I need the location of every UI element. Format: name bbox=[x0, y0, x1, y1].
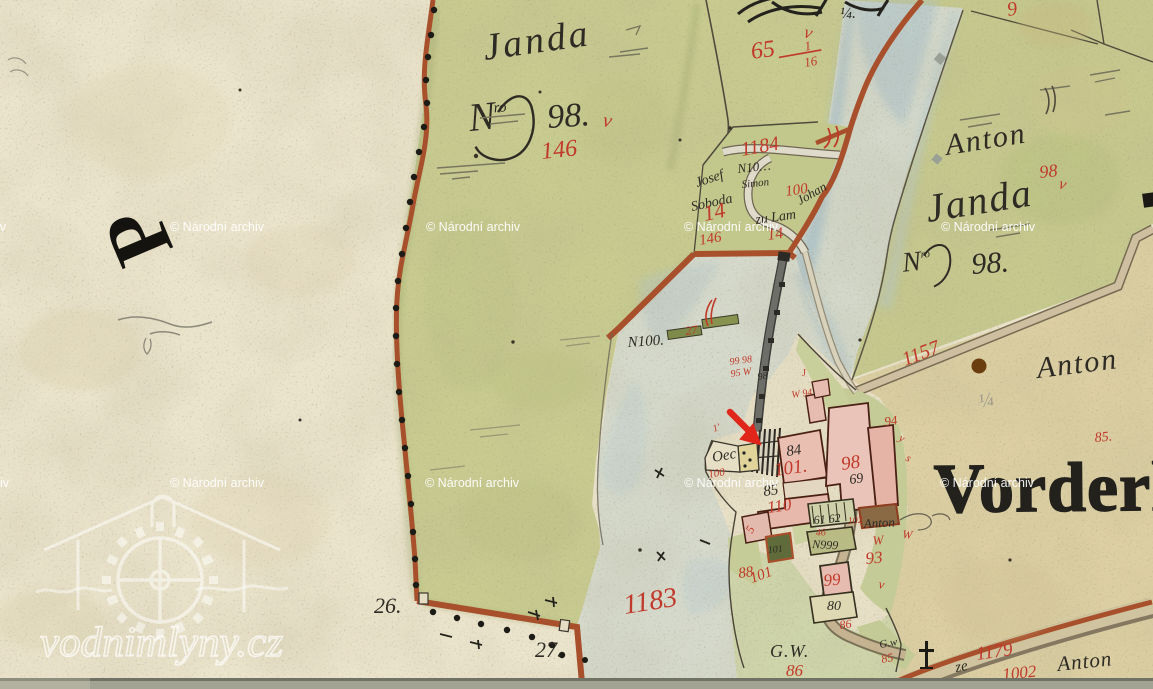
svg-text:ro: ro bbox=[493, 99, 508, 116]
svg-text:© Národní archiv: © Národní archiv bbox=[940, 476, 1035, 490]
svg-text:46: 46 bbox=[815, 527, 826, 539]
svg-text:ro: ro bbox=[920, 248, 931, 261]
svg-text:94: 94 bbox=[883, 412, 898, 429]
svg-text:80: 80 bbox=[827, 599, 841, 614]
svg-text:© Národní archiv: © Národní archiv bbox=[0, 476, 10, 490]
svg-text:Anton: Anton bbox=[862, 514, 895, 531]
svg-text:© Národní archiv: © Národní archiv bbox=[426, 220, 521, 234]
svg-text:99: 99 bbox=[823, 570, 842, 590]
svg-text:61 62: 61 62 bbox=[813, 511, 841, 527]
svg-text:N100.: N100. bbox=[626, 332, 664, 351]
svg-text:101: 101 bbox=[767, 544, 783, 556]
svg-text:98.: 98. bbox=[546, 96, 591, 136]
svg-text:© Národní archiv: © Národní archiv bbox=[941, 220, 1036, 234]
svg-text:© Národní archiv: © Národní archiv bbox=[684, 220, 779, 234]
svg-text:85.: 85. bbox=[1094, 430, 1113, 446]
svg-text:© Národní archiv: © Národní archiv bbox=[425, 476, 520, 490]
svg-text:98: 98 bbox=[757, 371, 768, 383]
svg-text:146: 146 bbox=[540, 135, 579, 165]
svg-text:¼.: ¼. bbox=[840, 5, 856, 22]
svg-text:© Národní archiv: © Národní archiv bbox=[0, 220, 7, 234]
svg-text:27.: 27. bbox=[535, 637, 563, 662]
svg-text:85: 85 bbox=[880, 650, 894, 666]
svg-text:86: 86 bbox=[838, 616, 852, 632]
svg-text:26.: 26. bbox=[374, 593, 402, 618]
svg-text:© Národní archiv: © Národní archiv bbox=[684, 476, 779, 490]
svg-text:93: 93 bbox=[865, 548, 884, 568]
svg-text:98.: 98. bbox=[970, 245, 1010, 281]
svg-text:© Národní archiv: © Národní archiv bbox=[170, 220, 265, 234]
svg-text:100: 100 bbox=[784, 181, 809, 200]
svg-text:102: 102 bbox=[847, 515, 863, 527]
svg-text:© Národní archiv: © Národní archiv bbox=[170, 476, 265, 490]
svg-text:110: 110 bbox=[766, 495, 793, 517]
svg-text:86: 86 bbox=[786, 661, 804, 680]
svg-text:65: 65 bbox=[749, 36, 776, 65]
svg-text:N999: N999 bbox=[811, 537, 839, 552]
svg-text:G.W.: G.W. bbox=[770, 641, 809, 661]
svg-text:69: 69 bbox=[848, 471, 864, 488]
svg-text:vodnimlyny.cz: vodnimlyny.cz bbox=[40, 620, 283, 666]
svg-text:98: 98 bbox=[1038, 160, 1058, 182]
